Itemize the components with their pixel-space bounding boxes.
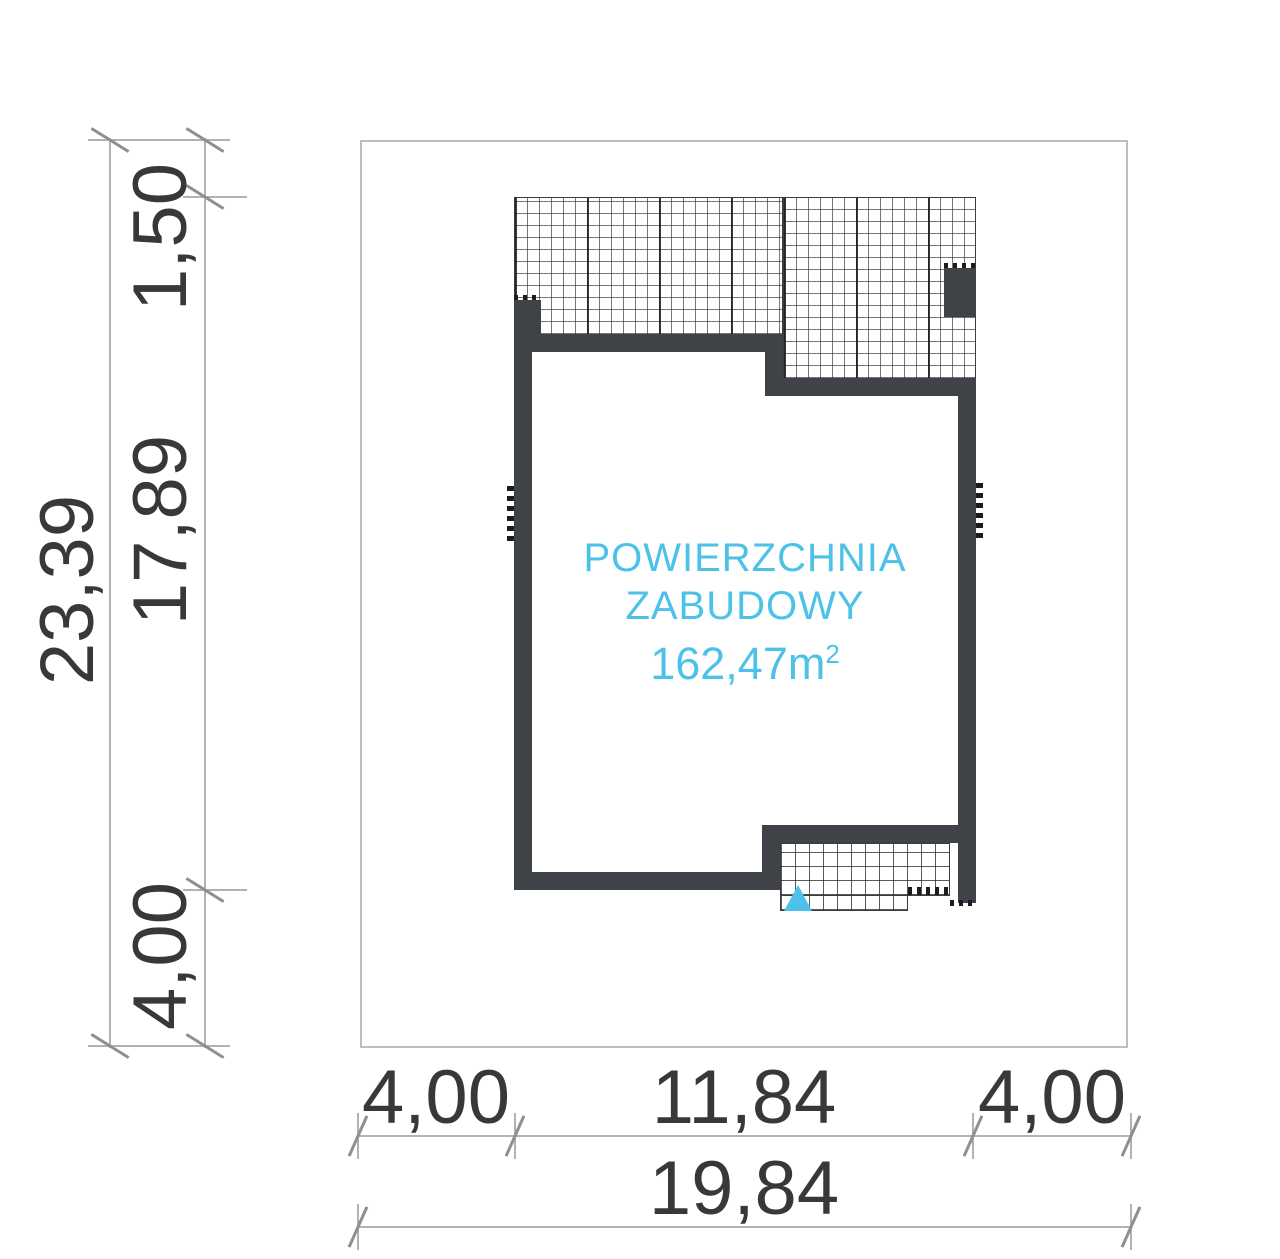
chimney-teeth bbox=[944, 263, 976, 268]
dim-bottom-total: 19,84 bbox=[649, 1151, 839, 1227]
entrance-arrow bbox=[784, 885, 812, 911]
wall-stub-teeth bbox=[514, 295, 541, 300]
dim-bottom-center: 11,84 bbox=[652, 1060, 837, 1136]
wall-stub-top-left bbox=[514, 300, 541, 336]
porch-steps bbox=[908, 887, 950, 895]
dim-left-top: 1,50 bbox=[123, 163, 199, 311]
chimney bbox=[944, 268, 976, 317]
dim-left-middle: 17,89 bbox=[123, 435, 199, 625]
area-label: POWIERZCHNIA ZABUDOWY 162,47m2 bbox=[495, 534, 995, 688]
dim-line-left-inner bbox=[204, 138, 206, 1048]
area-label-line1: POWIERZCHNIA bbox=[495, 534, 995, 582]
dim-left-bottom: 4,00 bbox=[123, 882, 199, 1030]
area-label-line2: ZABUDOWY bbox=[495, 582, 995, 630]
dim-left-total: 23,39 bbox=[30, 495, 106, 685]
top-wall-right bbox=[765, 378, 976, 396]
bottom-wall-left bbox=[514, 872, 780, 890]
area-value: 162,47m2 bbox=[495, 630, 995, 688]
top-wall-left bbox=[514, 334, 783, 352]
dim-bottom-left: 4,00 bbox=[362, 1060, 510, 1136]
bottom-wall-right bbox=[762, 825, 976, 843]
right-wall-bottom-dashes bbox=[950, 900, 976, 906]
site-plan-canvas: POWIERZCHNIA ZABUDOWY 162,47m2 23,39 1,5… bbox=[0, 0, 1280, 1259]
roof-hatch-left bbox=[514, 197, 783, 335]
dim-bottom-right: 4,00 bbox=[978, 1060, 1126, 1136]
